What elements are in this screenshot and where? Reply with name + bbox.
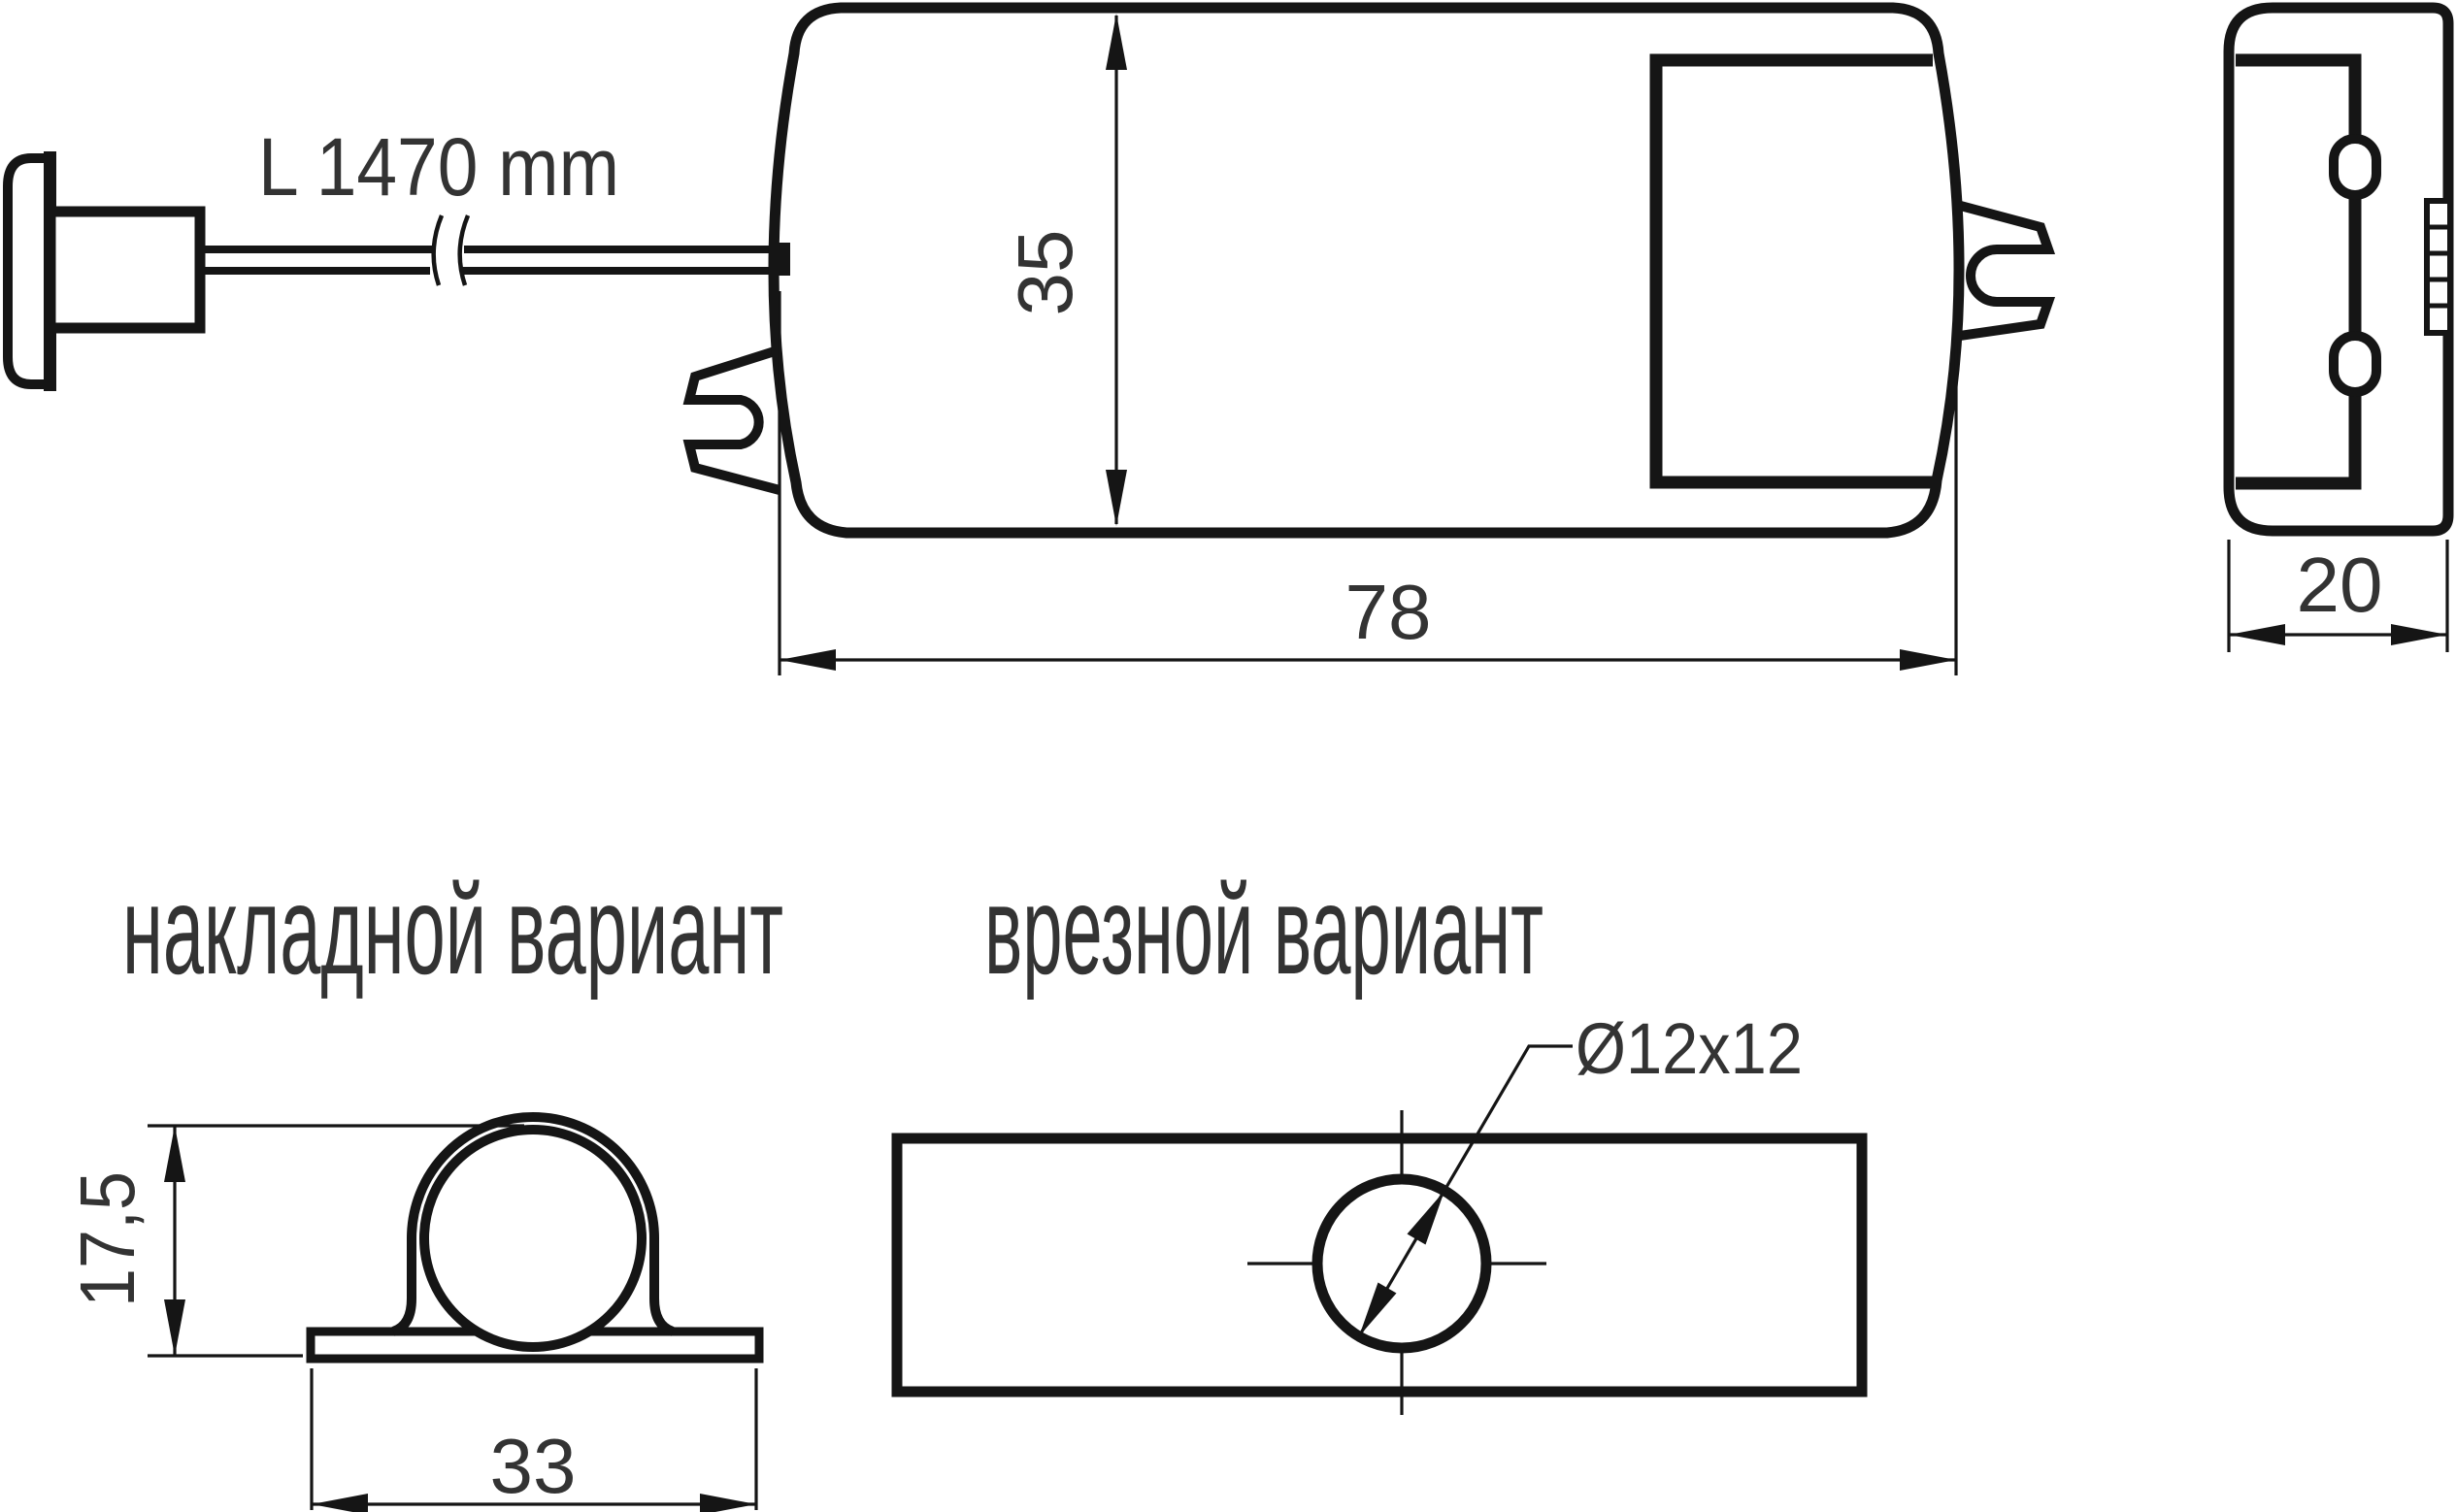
arrow-right-icon [1900, 649, 1956, 671]
dim-33-label: 33 [490, 1423, 577, 1509]
front-view [689, 8, 2048, 533]
surface-variant-title: накладной вариант [122, 859, 783, 1001]
device-body-outline [774, 8, 1959, 533]
arrow-left-icon [780, 649, 836, 671]
arrow-left-icon [2229, 624, 2285, 645]
flush-variant-title: врезной вариант [984, 859, 1543, 1001]
arrow-down-icon [164, 1299, 185, 1356]
technical-drawing-page: L 1470 mm 35 78 [0, 0, 2456, 1512]
arrow-left-icon [312, 1494, 368, 1512]
flush-plate-view: Ø12x12 [897, 1008, 1862, 1415]
arrow-up-icon [164, 1126, 185, 1182]
cable-entry [773, 243, 790, 276]
clip-bump [2334, 139, 2376, 195]
dimensional-drawing: L 1470 mm 35 78 [0, 0, 2456, 1512]
mounting-tab-right [1953, 204, 2048, 337]
side-body-outline [2229, 8, 2448, 531]
cable [200, 215, 790, 285]
surface-clamp-view [311, 1117, 759, 1359]
dimension-clamp-width: 33 [312, 1368, 756, 1512]
dim-35-label: 35 [1002, 230, 1088, 316]
terminal-block [2427, 201, 2450, 333]
dim-17-5-label: 17,5 [64, 1171, 150, 1307]
clip-bump [2334, 336, 2376, 392]
cable-length-label: L 1470 mm [258, 121, 619, 213]
cable-break-icon [434, 215, 442, 285]
sensor-body [50, 212, 200, 328]
side-view [2229, 8, 2450, 531]
mounting-tab-left [689, 350, 780, 490]
dimension-depth: 20 [2229, 540, 2447, 652]
arrow-right-icon [700, 1494, 756, 1512]
hole-dimension-label: Ø12x12 [1576, 1008, 1803, 1089]
arrow-right-icon [2391, 624, 2447, 645]
sensor-cross-section [424, 1130, 642, 1347]
dim-20-label: 20 [2297, 542, 2383, 628]
sensor-head [8, 151, 200, 391]
dim-78-label: 78 [1345, 569, 1432, 655]
